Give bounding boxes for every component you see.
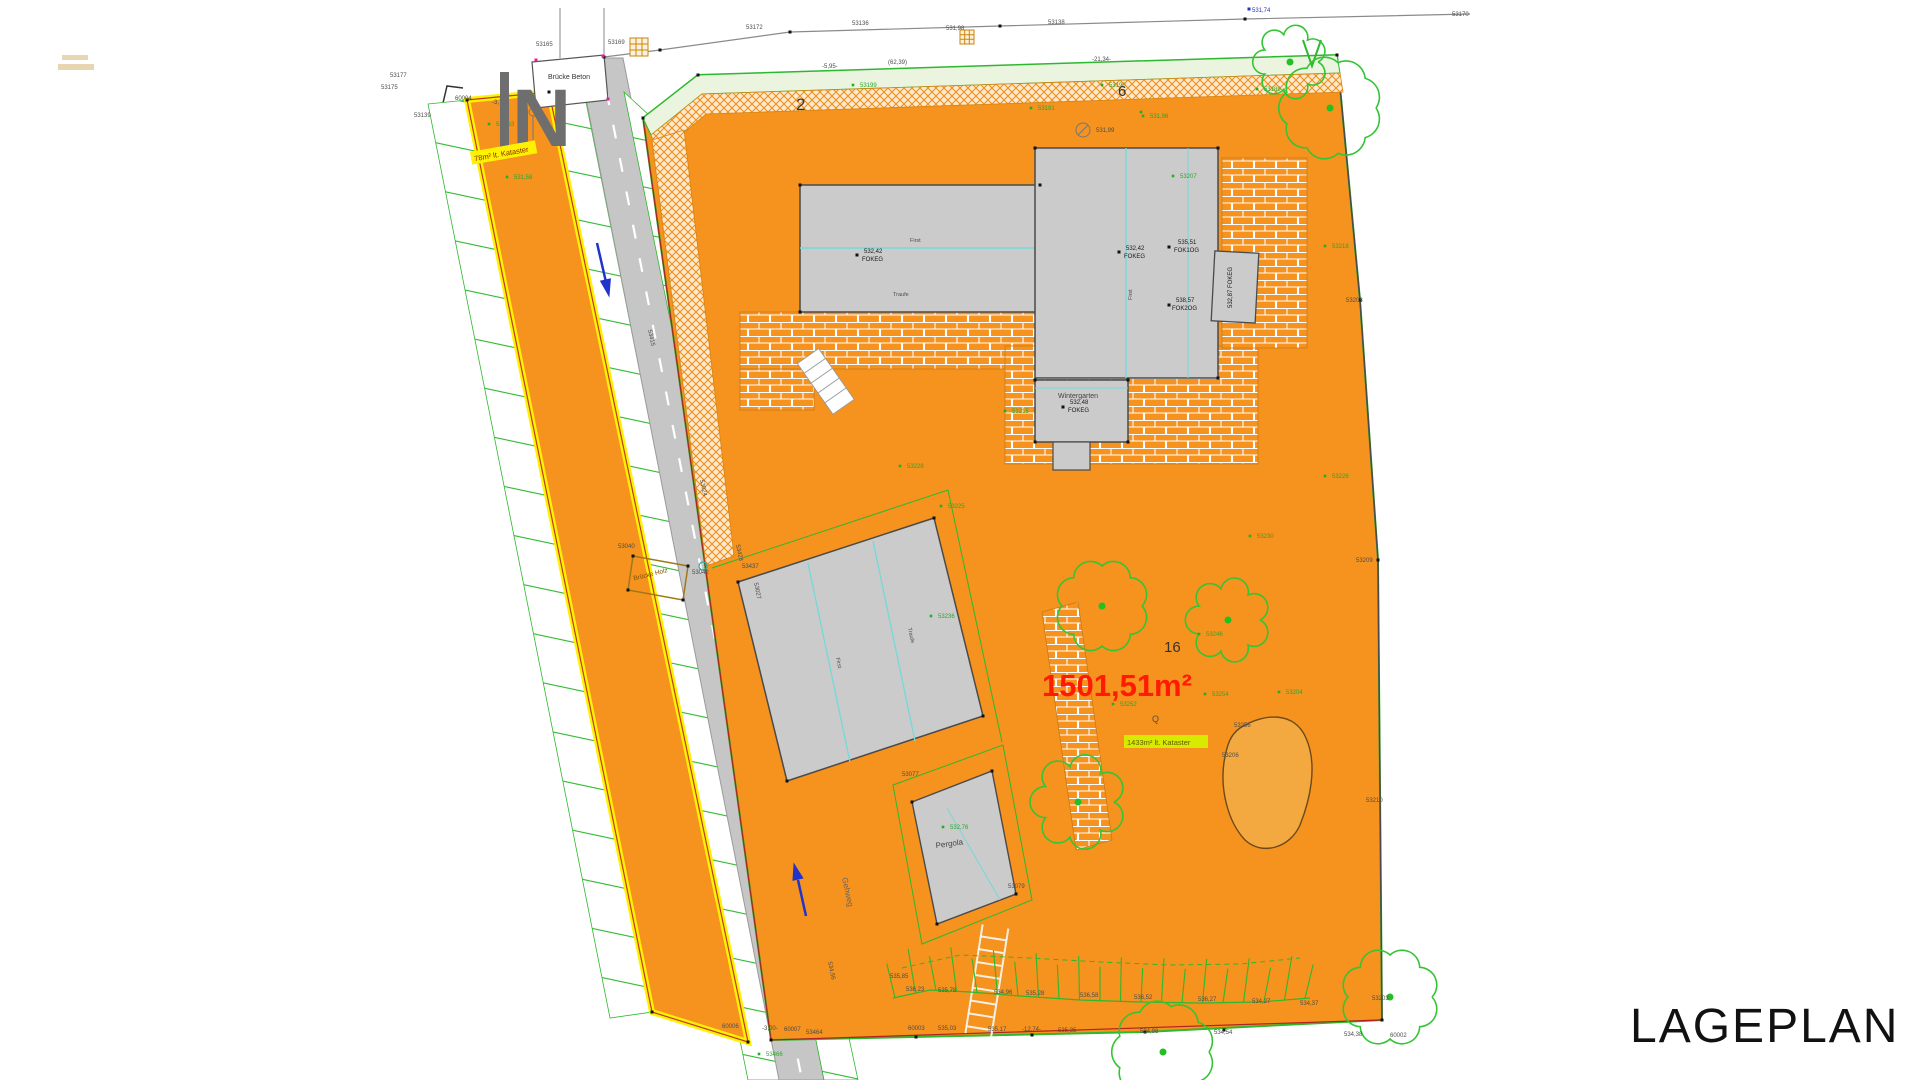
survey-point [1172, 175, 1175, 178]
survey-label: 53246 [1206, 632, 1223, 638]
survey-point [1256, 88, 1259, 91]
svg-text:1433m² lt. Kataster: 1433m² lt. Kataster [1127, 738, 1191, 747]
survey-label: 53189 [1264, 87, 1281, 93]
survey-label: 53169 [608, 40, 625, 46]
survey-point [1336, 54, 1339, 57]
parcel-number-16: 16 [1164, 639, 1181, 656]
survey-label: Traufe [893, 292, 909, 298]
survey-label: 53256 [1234, 723, 1251, 729]
survey-point [1324, 245, 1327, 248]
survey-label: 53136 [852, 21, 869, 27]
survey-point [1034, 379, 1037, 382]
survey-label: 534,38 [1344, 1032, 1363, 1038]
survey-label: 534,98 [1140, 1029, 1159, 1035]
survey-label: 60006 [722, 1024, 739, 1030]
survey-label: 532,42 [864, 249, 883, 255]
survey-label: 53466 [766, 1052, 783, 1058]
survey-label: -21,34- [1092, 57, 1111, 63]
survey-label: 53170 [1452, 12, 1469, 18]
survey-label: 53040 [618, 544, 635, 550]
survey-label: 535,17 [988, 1027, 1007, 1033]
survey-point [1204, 693, 1207, 696]
survey-point [1278, 691, 1281, 694]
survey-label: 53204 [1286, 690, 1303, 696]
survey-label: 53230 [1257, 534, 1274, 540]
wintergarten-label: Wintergarten [1058, 393, 1098, 400]
survey-point [982, 715, 985, 718]
survey-label: -5,95- [822, 64, 838, 70]
stamp-mark [58, 55, 94, 70]
survey-point [682, 599, 685, 602]
survey-label: 53042 [692, 570, 709, 576]
tree-trunk-dot [1327, 105, 1334, 112]
survey-point [488, 123, 491, 126]
survey-label: 53254 [1212, 692, 1229, 698]
survey-point [1034, 147, 1037, 150]
survey-label: 53177 [390, 73, 407, 79]
survey-label: 53437 [742, 564, 759, 570]
survey-label: 536,27 [1198, 997, 1217, 1003]
survey-label: 531,74 [1252, 8, 1271, 14]
survey-label: 60002 [1390, 1033, 1407, 1039]
survey-point [607, 98, 610, 101]
survey-label: 53225 [948, 504, 965, 510]
survey-label: 53228 [907, 464, 924, 470]
survey-label: 53209 [1356, 558, 1373, 564]
survey-label: 53077 [902, 772, 919, 778]
survey-label: 53138 [1048, 20, 1065, 26]
survey-label: 53139 [414, 113, 431, 119]
survey-label: 535,03 [938, 1026, 957, 1032]
survey-point [1004, 410, 1007, 413]
survey-label: 535,35 [1058, 1028, 1077, 1034]
survey-point [799, 311, 802, 314]
survey-label: 534,54 [1214, 1030, 1233, 1036]
survey-label: 53079 [1008, 884, 1025, 890]
survey-point [856, 254, 859, 257]
survey-label: 53165 [536, 42, 553, 48]
north-arrow-bar [500, 72, 509, 156]
survey-label: 60007 [784, 1027, 801, 1033]
survey-label: 534,37 [1300, 1001, 1319, 1007]
survey-label: 53207 [1180, 174, 1197, 180]
survey-point [1127, 379, 1130, 382]
survey-label: FOK1OG [1174, 248, 1199, 254]
shaft-grid-1 [630, 38, 648, 56]
survey-label: 534,27 [1252, 999, 1271, 1005]
survey-label: 53203 [1372, 996, 1389, 1002]
survey-label: 538,57 [1176, 298, 1195, 304]
survey-label: 535,78 [938, 988, 957, 994]
survey-point [642, 117, 645, 120]
survey-point [786, 780, 789, 783]
parcel-number-6: 6 [1118, 83, 1126, 100]
survey-point [632, 555, 635, 558]
survey-point [1015, 893, 1018, 896]
survey-label: 53191 [1038, 106, 1055, 112]
survey-label: (62,39) [888, 60, 907, 66]
tree-trunk-dot [1099, 603, 1106, 610]
tree-trunk-dot [1287, 59, 1294, 66]
survey-point [1112, 703, 1115, 706]
survey-point [942, 826, 945, 829]
survey-point [1127, 441, 1130, 444]
survey-point [991, 770, 994, 773]
survey-point [852, 84, 855, 87]
survey-label: FOKEG [862, 257, 883, 263]
survey-point [687, 565, 690, 568]
survey-label: 53226 [1332, 474, 1349, 480]
survey-label: 53206 [1222, 753, 1239, 759]
survey-point [1030, 107, 1033, 110]
survey-point [1249, 535, 1252, 538]
survey-point [899, 465, 902, 468]
survey-point [1039, 184, 1042, 187]
survey-label: 532,48 [1070, 400, 1089, 406]
survey-label: 60003 [908, 1026, 925, 1032]
tree-trunk-dot [1075, 799, 1082, 806]
house-annex [1211, 251, 1259, 323]
survey-label: 532,42 [1126, 246, 1145, 252]
survey-label: First [1128, 289, 1134, 300]
survey-label: FOKEG [1068, 408, 1089, 414]
survey-point [1381, 1019, 1384, 1022]
survey-point [1244, 18, 1247, 21]
survey-label: 53172 [746, 25, 763, 31]
survey-label: 536,23 [906, 987, 925, 993]
survey-point [659, 49, 662, 52]
survey-point [737, 581, 740, 584]
survey-label: 536,58 [1080, 993, 1099, 999]
survey-label: 534,96 [994, 990, 1013, 996]
survey-point [1217, 377, 1220, 380]
plan-svg: 5317253136531,9853138531,745317053165531… [0, 0, 1920, 1080]
survey-point [697, 74, 700, 77]
survey-point [506, 176, 509, 179]
survey-point [651, 1011, 654, 1014]
survey-label: 60004 [455, 96, 472, 102]
parcel-area-label: 1501,51m² [1042, 668, 1192, 703]
shaft-grid-2 [960, 30, 974, 44]
survey-point [535, 59, 538, 62]
survey-label: 53236 [938, 614, 955, 620]
survey-label: 53210 [1366, 798, 1383, 804]
survey-point [1118, 251, 1121, 254]
survey-point [1248, 8, 1251, 11]
survey-point [1217, 147, 1220, 150]
survey-point [1168, 304, 1171, 307]
survey-point [936, 923, 939, 926]
terrace-brick-west-step [740, 369, 814, 410]
survey-label: -3,00- [762, 1026, 778, 1032]
survey-point [1198, 633, 1201, 636]
survey-point [789, 31, 792, 34]
survey-point [747, 1041, 750, 1044]
survey-label: 531,58 [514, 175, 533, 181]
survey-label: 532,87 FOKEG [1228, 267, 1234, 308]
survey-point [770, 1039, 773, 1042]
survey-point [799, 184, 802, 187]
survey-label: FOKEG [1124, 254, 1145, 260]
survey-label: 532,76 [950, 825, 969, 831]
tree-trunk-dot [1160, 1049, 1167, 1056]
survey-point [627, 589, 630, 592]
page-title: LAGEPLAN [1630, 1000, 1899, 1053]
survey-point [1142, 115, 1145, 118]
survey-point [1377, 559, 1380, 562]
survey-label: 531,96 [1150, 114, 1169, 120]
survey-label: 53215 [1012, 409, 1029, 415]
survey-point [999, 25, 1002, 28]
tree-trunk-dot [1225, 617, 1232, 624]
survey-point [1101, 84, 1104, 87]
house-stub [1053, 442, 1090, 470]
survey-point [1031, 1034, 1034, 1037]
survey-label: 535,51 [1178, 240, 1197, 246]
survey-label: 53218 [1332, 244, 1349, 250]
survey-label: 53464 [806, 1030, 823, 1036]
survey-point [933, 517, 936, 520]
lageplan-canvas: 5317253136531,9853138531,745317053165531… [0, 0, 1920, 1080]
survey-point [940, 505, 943, 508]
survey-point [602, 55, 605, 58]
survey-point [930, 615, 933, 618]
survey-line-top [604, 14, 1470, 57]
survey-point [1324, 475, 1327, 478]
survey-label: FOK2OG [1172, 306, 1197, 312]
survey-label: 536,52 [1134, 995, 1153, 1001]
survey-label: 53208 [1346, 298, 1363, 304]
survey-point [1168, 246, 1171, 249]
parcel-number-2: 2 [796, 95, 805, 114]
kataster-main-label: 1433m² lt. Kataster [1124, 735, 1208, 748]
survey-label: 531,98 [946, 26, 965, 32]
survey-label: 535,85 [890, 974, 909, 980]
survey-point [1140, 111, 1143, 114]
survey-point [1062, 406, 1065, 409]
survey-point [1034, 441, 1037, 444]
pond-shape [1223, 717, 1312, 848]
survey-label: -12,74- [1022, 1027, 1041, 1033]
survey-label: First [910, 238, 921, 244]
bruecke-beton-label: Brücke Beton [548, 74, 590, 81]
survey-point [758, 1053, 761, 1056]
survey-point [911, 801, 914, 804]
survey-point [915, 1036, 918, 1039]
terrace-brick-west [740, 312, 1040, 369]
survey-label: 53199 [860, 83, 877, 89]
survey-label: 535,28 [1026, 991, 1045, 997]
survey-label: Q [1152, 714, 1159, 724]
survey-label: 53175 [381, 85, 398, 91]
survey-label: 531,99 [1096, 128, 1115, 134]
